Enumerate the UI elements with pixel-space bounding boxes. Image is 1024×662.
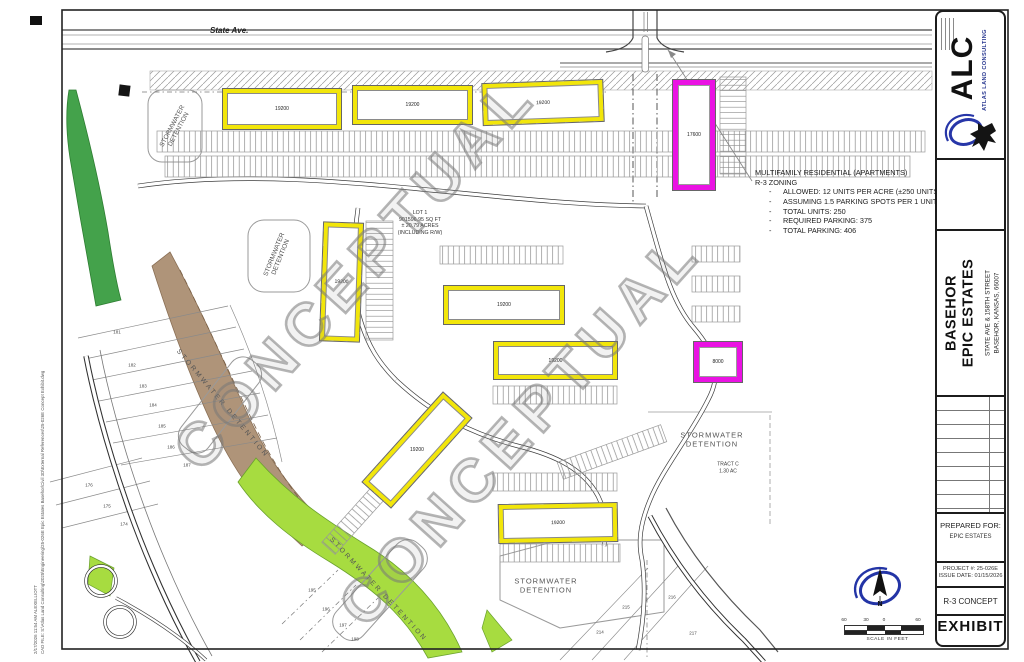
parcel-number: 196 bbox=[322, 607, 330, 612]
building-19200-1: 19200 bbox=[222, 88, 342, 130]
parcel-number: 182 bbox=[128, 363, 136, 368]
parcel-number: 216 bbox=[668, 595, 676, 600]
parcel-number: 197 bbox=[339, 623, 347, 628]
building-19200-8: 19200 bbox=[498, 502, 619, 544]
parcel-number: 195 bbox=[308, 588, 316, 593]
title-block: ALC ATLAS LAND CONSULTING BASEHOR EPIC E… bbox=[935, 10, 1006, 647]
parcel-number: 215 bbox=[622, 605, 630, 610]
scale-caption: SCALE IN FEET bbox=[840, 637, 935, 642]
zoning-note: MULTIFAMILY RESIDENTIAL (APARTMENTS) R-3… bbox=[755, 168, 945, 235]
parcel-number: 185 bbox=[158, 424, 166, 429]
prepared-for-block: PREPARED FOR: EPIC ESTATES bbox=[937, 514, 1004, 563]
project-number-block: PROJECT #: 25-026E ISSUE DATE: 01/15/202… bbox=[937, 563, 1004, 588]
building-8000: 8000 bbox=[693, 341, 743, 383]
green-patch-1 bbox=[482, 610, 512, 652]
parcel-number: 198 bbox=[351, 637, 359, 642]
tree-area-west bbox=[67, 90, 121, 306]
sheet-type-block: EXHIBIT bbox=[937, 616, 1004, 641]
structure-marker bbox=[118, 84, 130, 96]
parcel-number: 175 bbox=[103, 504, 111, 509]
tract-label: TRACT C 1.30 AC bbox=[717, 462, 739, 475]
building-17600: 17600 bbox=[672, 79, 716, 191]
zoning-subtitle: R-3 ZONING bbox=[755, 178, 945, 188]
registration-mark bbox=[30, 16, 42, 25]
plan-sheet: State Ave. 19200 19200 19200 19200 19200… bbox=[0, 0, 1024, 662]
parcel-number: 184 bbox=[149, 403, 157, 408]
north-label: N bbox=[877, 601, 882, 608]
north-arrow: N bbox=[845, 562, 915, 624]
zoning-title: MULTIFAMILY RESIDENTIAL (APARTMENTS) bbox=[755, 168, 945, 178]
road-label-state-ave: State Ave. bbox=[210, 26, 248, 35]
green-patch-2 bbox=[88, 556, 114, 596]
parcel-number: 183 bbox=[139, 384, 147, 389]
parcel-number: 217 bbox=[689, 631, 697, 636]
revision-table bbox=[937, 397, 1004, 514]
firm-name: ATLAS LAND CONSULTING bbox=[982, 29, 988, 111]
detention-label-6: STORMWATER DETENTION bbox=[673, 431, 751, 448]
firm-abbr: ALC bbox=[946, 36, 980, 101]
parcel-number: 176 bbox=[85, 483, 93, 488]
parcel-number: 174 bbox=[120, 522, 128, 527]
title-block-spacer bbox=[937, 160, 1004, 231]
detention-label-5: STORMWATER DETENTION bbox=[507, 577, 585, 594]
scale-bar: 60 30 0 60 SCALE IN FEET bbox=[840, 618, 935, 642]
sheet-title-block: R-3 CONCEPT bbox=[937, 588, 1004, 616]
atlas-logo-icon bbox=[940, 111, 1002, 157]
plot-stamp: 2/17/2026 11:54 AM ALEXELLIOTT CAD FILE:… bbox=[33, 371, 46, 654]
parcel-number: 214 bbox=[596, 630, 604, 635]
project-title-block: BASEHOR EPIC ESTATES STATE AVE & 158TH S… bbox=[937, 231, 1004, 397]
building-19200-5: 19200 bbox=[443, 285, 565, 325]
parcel-number: 181 bbox=[113, 330, 121, 335]
firm-logo-block: ALC ATLAS LAND CONSULTING bbox=[937, 12, 1004, 160]
